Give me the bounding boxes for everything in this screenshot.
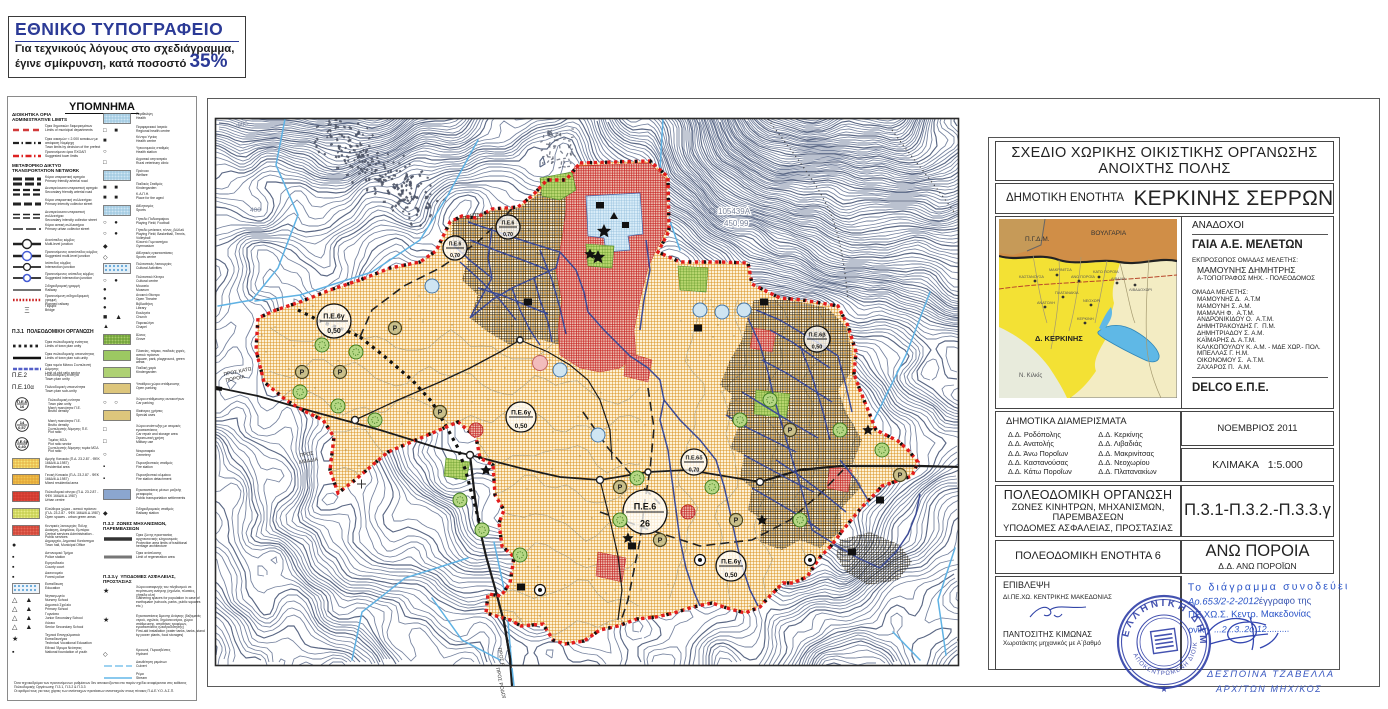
svg-text:Π.Ε.6β: Π.Ε.6β [16, 439, 29, 444]
svg-text:0,57: 0,57 [18, 425, 27, 430]
svg-text:Π.Ε.6β: Π.Ε.6β [808, 333, 826, 339]
svg-text:0,50: 0,50 [725, 572, 738, 579]
svg-text:P: P [658, 538, 663, 545]
svg-text:P: P [734, 518, 739, 525]
svg-text:Π.Ε.6δ: Π.Ε.6δ [685, 456, 703, 462]
svg-text:0,70: 0,70 [450, 253, 460, 259]
svg-text:450,99: 450,99 [724, 219, 749, 228]
svg-text:P: P [898, 473, 903, 480]
svg-text:0,40: 0,40 [18, 444, 27, 449]
svg-text:ΚΕΡΚΙΝΗ: ΚΕΡΚΙΝΗ [1077, 317, 1094, 321]
svg-text:Ν. Κιλκίς: Ν. Κιλκίς [1019, 373, 1042, 379]
svg-text:P: P [393, 326, 398, 333]
svg-text:ΠΡΟΣ ΡΟΔΟΠΟΛΗ: ΠΡΟΣ ΡΟΔΟΠΟΛΗ [494, 667, 509, 698]
svg-text:0,50: 0,50 [515, 423, 528, 430]
svg-text:ΑΝΩ ΠΟΡΟΪΑ: ΑΝΩ ΠΟΡΟΪΑ [1071, 275, 1095, 279]
svg-text:Π.Ε.6: Π.Ε.6 [502, 221, 515, 227]
svg-text:Δ. ΚΕΡΚΙΝΗΣ: Δ. ΚΕΡΚΙΝΗΣ [1035, 334, 1083, 343]
svg-text:0,50: 0,50 [327, 328, 341, 335]
svg-text:ΛΙΒΑΔΙΑ: ΛΙΒΑΔΙΑ [1111, 277, 1126, 281]
svg-text:Π.Ε.6γ: Π.Ε.6γ [511, 410, 531, 417]
svg-text:P: P [438, 410, 443, 417]
svg-text:0,50: 0,50 [812, 345, 823, 351]
svg-text:ΚΑΤΩ ΠΟΡΟΪΑ: ΚΑΤΩ ΠΟΡΟΪΑ [1093, 270, 1119, 274]
svg-text:ΜΑΚΡΙΝΙΤΣΑ: ΜΑΚΡΙΝΙΤΣΑ [1049, 268, 1072, 272]
svg-text:14: 14 [20, 420, 25, 425]
svg-text:-500-: -500- [235, 121, 250, 129]
svg-text:P: P [338, 370, 343, 377]
svg-text:Π.Γ.Δ.Μ.: Π.Γ.Δ.Μ. [1025, 236, 1050, 243]
svg-text:P: P [618, 485, 623, 492]
svg-text:Π.Ε.6γ: Π.Ε.6γ [721, 559, 741, 566]
svg-text:★: ★ [1160, 684, 1168, 694]
svg-text:P: P [788, 428, 793, 435]
svg-text:ΒΟΥΛΓΑΡΙΑ: ΒΟΥΛΓΑΡΙΑ [1091, 230, 1127, 237]
svg-text:Ξ: Ξ [24, 306, 29, 315]
svg-text:ΠΛΑΤΑΝΑΚΙΑ: ΠΛΑΤΑΝΑΚΙΑ [1055, 291, 1079, 295]
svg-text:400: 400 [250, 207, 261, 214]
svg-text:105439A: 105439A [718, 207, 751, 216]
svg-text:Π.Ε.6: Π.Ε.6 [17, 399, 28, 404]
svg-text:Π.Ε.6γ: Π.Ε.6γ [323, 314, 345, 321]
svg-text:Π.Ε.6: Π.Ε.6 [634, 502, 657, 512]
svg-text:26: 26 [640, 519, 650, 529]
svg-text:ΑΝΑΤΟΛΗ: ΑΝΑΤΟΛΗ [1037, 301, 1055, 305]
svg-text:P: P [300, 370, 305, 377]
svg-text:ΚΑΣΤΑΝΟΥΣΑ: ΚΑΣΤΑΝΟΥΣΑ [1019, 275, 1044, 279]
svg-text:ΝΕΟΧΩΡΙ: ΝΕΟΧΩΡΙ [1083, 299, 1100, 303]
svg-text:Π.Ε.6: Π.Ε.6 [449, 242, 462, 248]
svg-text:ΛΙΒΑΔΟΧΩΡΙ: ΛΙΒΑΔΟΧΩΡΙ [1129, 288, 1152, 292]
svg-text:0,70: 0,70 [503, 232, 513, 238]
svg-text:16: 16 [20, 404, 25, 409]
svg-text:0,70: 0,70 [689, 468, 700, 474]
